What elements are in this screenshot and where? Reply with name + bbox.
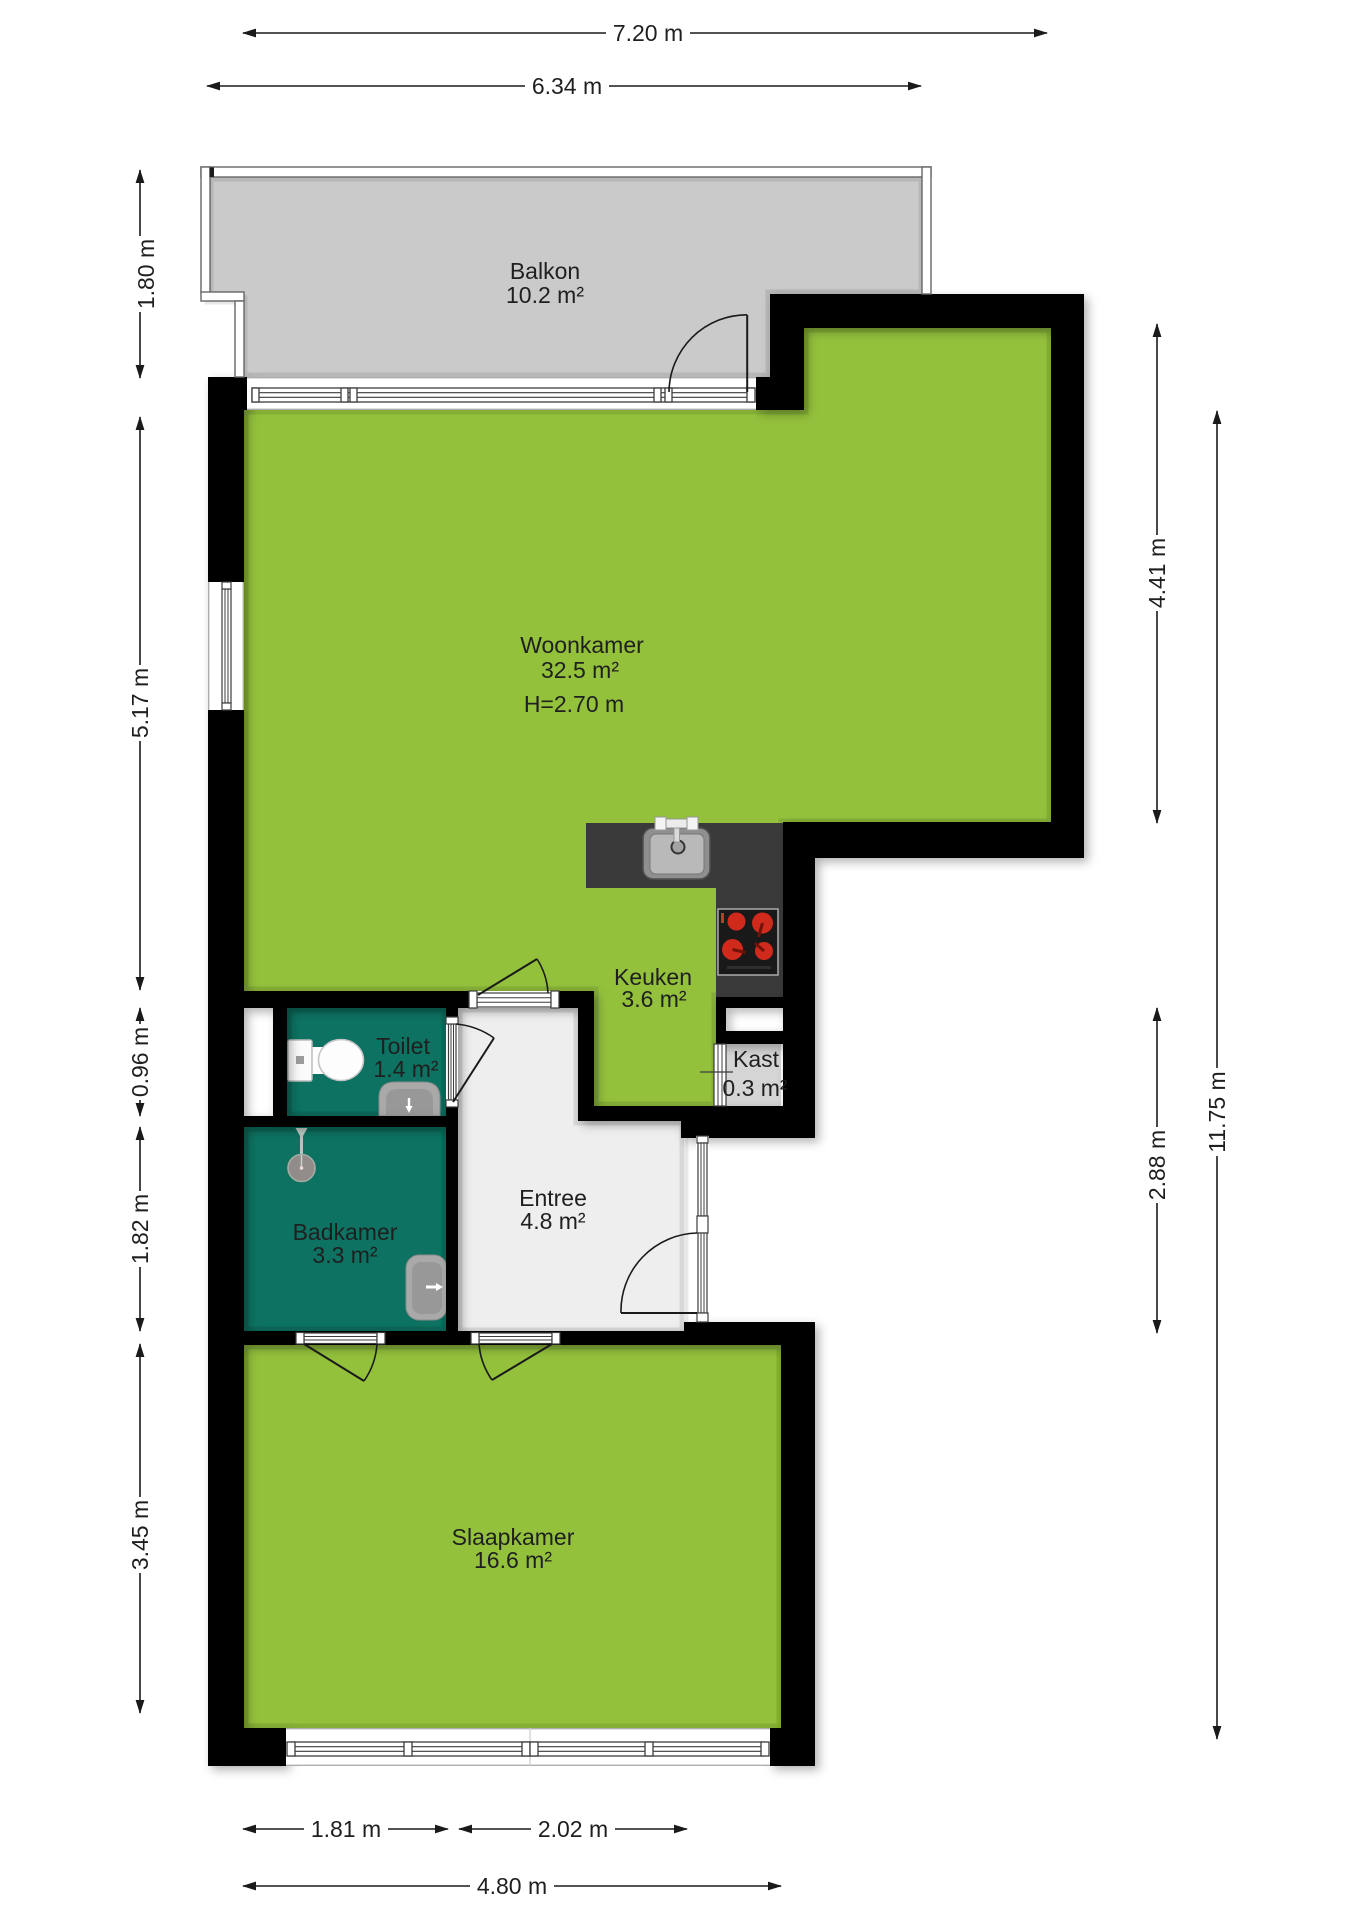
svg-text:4.41 m: 4.41 m <box>1144 538 1170 608</box>
svg-text:6.34 m: 6.34 m <box>532 73 602 99</box>
svg-text:1.4 m²: 1.4 m² <box>373 1056 439 1082</box>
svg-text:3.45 m: 3.45 m <box>127 1500 153 1570</box>
svg-text:11.75 m: 11.75 m <box>1204 1071 1230 1152</box>
svg-text:3.3 m²: 3.3 m² <box>312 1242 378 1268</box>
svg-text:0.96 m: 0.96 m <box>127 1027 153 1097</box>
svg-text:3.6 m²: 3.6 m² <box>621 986 687 1012</box>
svg-text:2.88 m: 2.88 m <box>1144 1130 1170 1200</box>
svg-text:H=2.70 m: H=2.70 m <box>524 691 624 717</box>
svg-text:32.5 m²: 32.5 m² <box>541 657 619 683</box>
svg-text:Kast: Kast <box>733 1046 780 1072</box>
svg-text:7.20 m: 7.20 m <box>613 20 683 46</box>
svg-text:5.17 m: 5.17 m <box>127 668 153 738</box>
svg-text:0.3 m²: 0.3 m² <box>722 1075 788 1101</box>
svg-text:Balkon: Balkon <box>510 258 580 284</box>
svg-text:1.81 m: 1.81 m <box>311 1816 381 1842</box>
svg-text:1.80 m: 1.80 m <box>133 239 159 309</box>
svg-text:Woonkamer: Woonkamer <box>520 632 644 658</box>
svg-text:16.6 m²: 16.6 m² <box>474 1547 552 1573</box>
svg-text:10.2 m²: 10.2 m² <box>506 282 584 308</box>
svg-text:4.8 m²: 4.8 m² <box>520 1208 586 1234</box>
svg-text:1.82 m: 1.82 m <box>127 1194 153 1264</box>
svg-text:4.80 m: 4.80 m <box>477 1873 547 1899</box>
svg-text:2.02 m: 2.02 m <box>538 1816 608 1842</box>
